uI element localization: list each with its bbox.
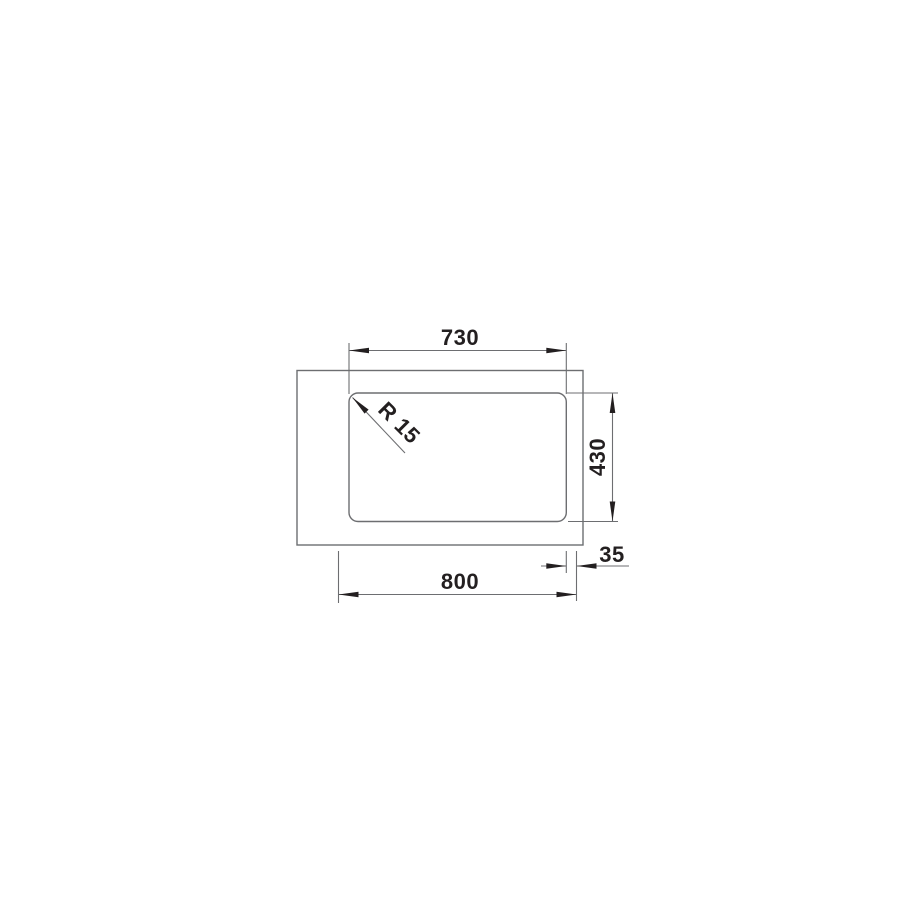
sink-dimension-drawing: 730 430 800 35 [0, 0, 917, 917]
arrowhead-800-left-icon [339, 592, 359, 598]
radius-callout: R 15 [353, 397, 426, 453]
dimension-label-800: 800 [441, 569, 479, 594]
dimension-bowl-depth: 430 [567, 393, 618, 522]
dimension-label-730: 730 [441, 325, 479, 350]
dimension-overall-width: 800 [339, 551, 577, 603]
dimension-edge-offset: 35 [541, 542, 629, 573]
arrowhead-430-top-icon [610, 393, 616, 413]
arrowhead-800-right-icon [557, 592, 577, 598]
countertop-outline [297, 371, 583, 546]
technical-drawing-page: 730 430 800 35 [0, 0, 917, 917]
dimension-label-430: 430 [585, 438, 610, 476]
arrowhead-430-bottom-icon [610, 502, 616, 522]
arrowhead-35-right-icon [577, 563, 597, 569]
arrowhead-r15-icon [353, 398, 369, 414]
dimension-label-35: 35 [599, 542, 624, 567]
dimension-bowl-width: 730 [349, 325, 566, 394]
arrowhead-730-left-icon [349, 348, 369, 354]
arrowhead-730-right-icon [546, 348, 566, 354]
arrowhead-35-left-icon [546, 563, 566, 569]
radius-label-r15: R 15 [373, 397, 425, 449]
